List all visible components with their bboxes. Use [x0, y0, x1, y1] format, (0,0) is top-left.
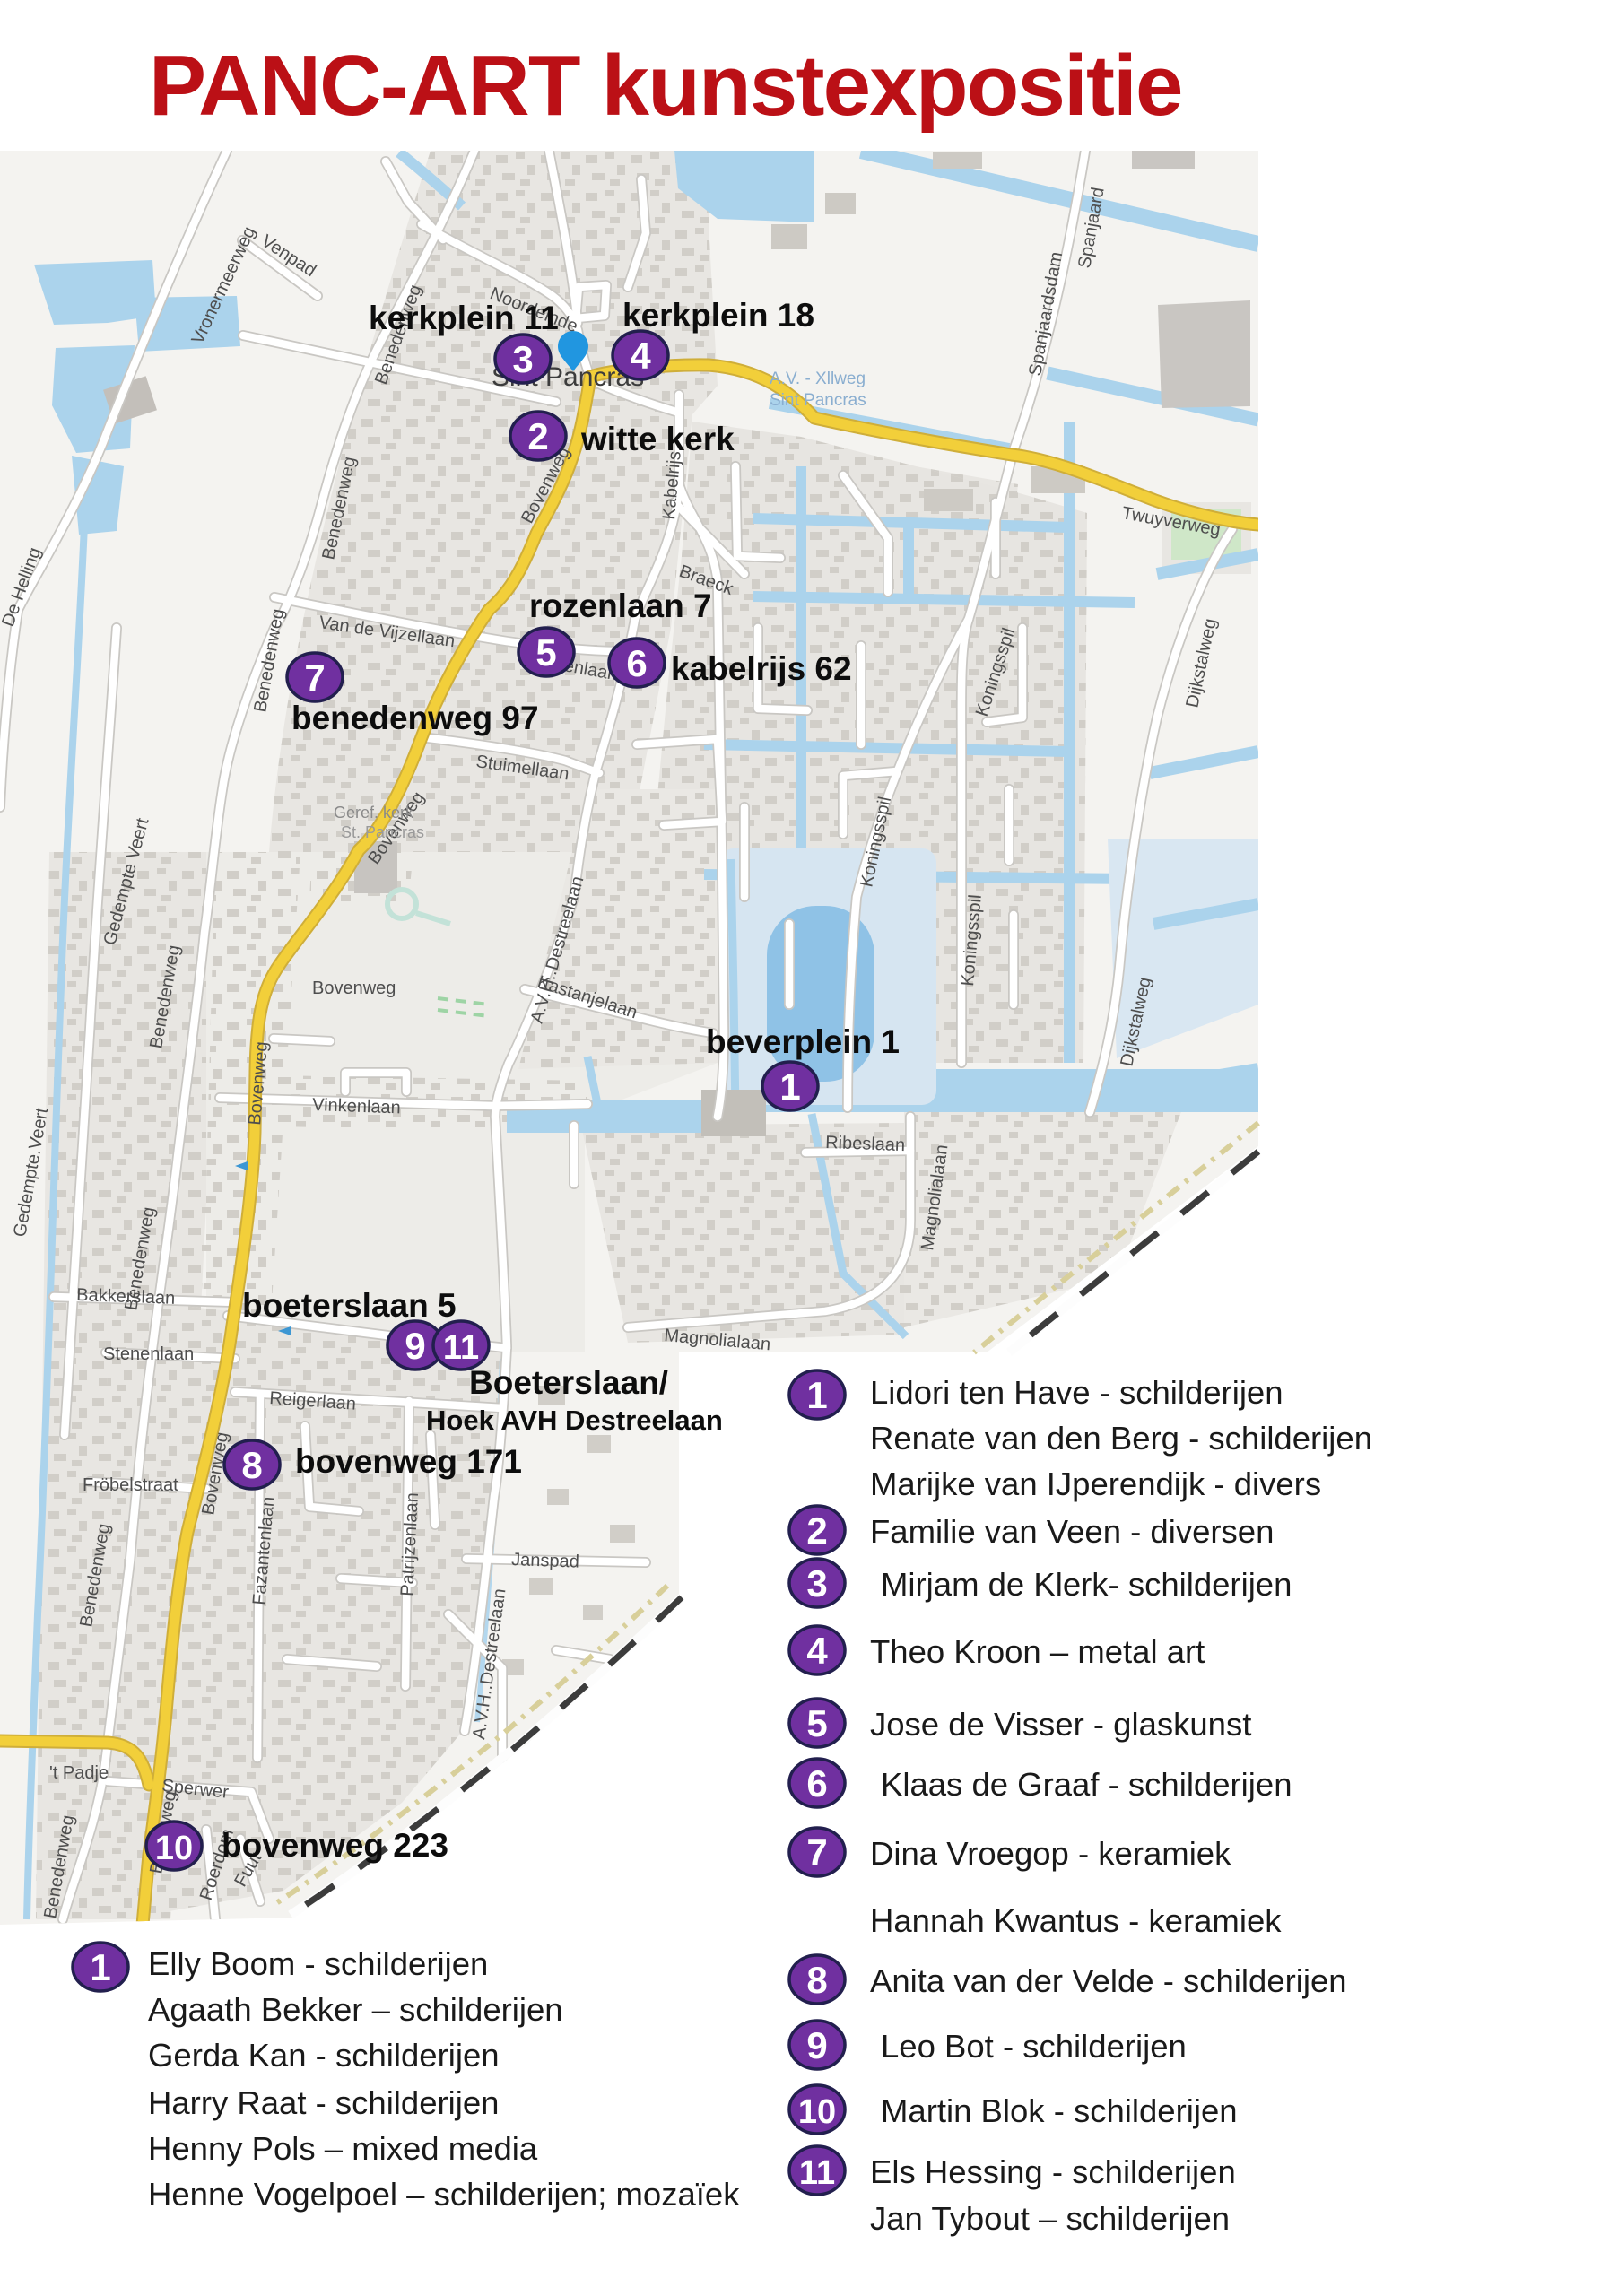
svg-text:Bovenweg: Bovenweg [312, 978, 396, 998]
svg-text:rozenlaan 7: rozenlaan 7 [529, 587, 712, 624]
svg-text:PANC-ART kunstexpositie: PANC-ART kunstexpositie [149, 38, 1182, 134]
svg-text:bovenweg 171: bovenweg 171 [295, 1443, 522, 1480]
svg-text:Renate van den Berg - schilder: Renate van den Berg - schilderijen [870, 1420, 1372, 1457]
svg-text:Jan Tybout – schilderijen: Jan Tybout – schilderijen [870, 2200, 1230, 2237]
svg-text:Mirjam de Klerk- schilderijen: Mirjam de Klerk- schilderijen [881, 1566, 1292, 1603]
svg-text:9: 9 [405, 1325, 425, 1367]
svg-text:kabelrijs 62: kabelrijs 62 [671, 650, 852, 687]
svg-text:7: 7 [304, 657, 325, 699]
svg-text:9: 9 [806, 2024, 827, 2066]
svg-text:Els Hessing - schilderijen: Els Hessing - schilderijen [870, 2153, 1236, 2190]
svg-text:Klaas de Graaf - schilderijen: Klaas de Graaf - schilderijen [881, 1766, 1292, 1803]
svg-text:beverplein 1: beverplein 1 [706, 1023, 900, 1060]
svg-text:kerkplein 11: kerkplein 11 [369, 300, 559, 336]
svg-text:bovenweg 223: bovenweg 223 [222, 1827, 448, 1864]
svg-text:Marijke van IJperendijk - div: Marijke van IJperendijk - divers [870, 1465, 1321, 1502]
svg-text:Hoek AVH Destreelaan: Hoek AVH Destreelaan [426, 1405, 723, 1436]
svg-text:Martin Blok - schilderijen: Martin Blok - schilderijen [881, 2092, 1238, 2129]
svg-text:Henny Pols – mixed media: Henny Pols – mixed media [148, 2130, 538, 2167]
svg-text:Janspad: Janspad [511, 1550, 579, 1572]
svg-text:2: 2 [806, 1509, 827, 1552]
svg-text:11: 11 [443, 1329, 479, 1367]
svg-text:Anita van der Velde - schilder: Anita van der Velde - schilderijen [870, 1962, 1347, 1999]
svg-text:benedenweg 97: benedenweg 97 [291, 700, 539, 736]
svg-text:5: 5 [535, 631, 556, 674]
svg-text:Vinkenlaan: Vinkenlaan [312, 1095, 401, 1118]
svg-text:A.V. - Xllweg: A.V. - Xllweg [770, 370, 866, 388]
svg-text:Jose de Visser - glaskunst: Jose de Visser - glaskunst [870, 1706, 1251, 1743]
svg-text:Lidori ten Have - schilderijen: Lidori ten Have - schilderijen [870, 1374, 1283, 1411]
svg-text:Stenenlaan: Stenenlaan [103, 1344, 194, 1364]
svg-text:10: 10 [798, 2093, 836, 2131]
svg-text:10: 10 [155, 1830, 193, 1867]
svg-text:Geref. kerk: Geref. kerk [334, 804, 414, 822]
svg-text:Familie van Veen - diversen: Familie van Veen - diversen [870, 1513, 1274, 1550]
svg-text:Bakkerslaan: Bakkerslaan [76, 1285, 176, 1309]
svg-text:Sint Pancras: Sint Pancras [770, 391, 866, 410]
svg-text:1: 1 [90, 1946, 110, 1988]
svg-text:Hannah Kwantus - keramiek: Hannah Kwantus - keramiek [870, 1902, 1282, 1939]
svg-text:kerkplein 18: kerkplein 18 [622, 297, 814, 334]
svg-text:Dina Vroegop - keramiek: Dina Vroegop - keramiek [870, 1835, 1231, 1872]
svg-text:1: 1 [779, 1065, 800, 1108]
svg-text:Elly Boom - schilderijen: Elly Boom - schilderijen [148, 1945, 488, 1982]
svg-text:6: 6 [806, 1762, 827, 1805]
svg-text:boeterslaan 5: boeterslaan 5 [242, 1287, 457, 1324]
svg-text:Boeterslaan/: Boeterslaan/ [469, 1364, 668, 1401]
svg-text:6: 6 [626, 642, 647, 684]
svg-text:'t Padje: 't Padje [49, 1763, 109, 1783]
svg-text:Henne Vogelpoel – schilderijen: Henne Vogelpoel – schilderijen; mozaïek [148, 2176, 740, 2213]
svg-text:Fröbelstraat: Fröbelstraat [83, 1475, 178, 1495]
svg-text:8: 8 [806, 1959, 827, 2001]
svg-text:11: 11 [799, 2154, 835, 2192]
svg-text:2: 2 [527, 415, 548, 457]
svg-text:Agaath Bekker – schilderijen: Agaath Bekker – schilderijen [148, 1991, 563, 2028]
svg-text:1: 1 [806, 1374, 827, 1416]
svg-text:3: 3 [806, 1562, 827, 1605]
svg-text:4: 4 [806, 1630, 828, 1672]
svg-text:Theo Kroon – metal art: Theo Kroon – metal art [870, 1633, 1205, 1670]
svg-text:Ribeslaan: Ribeslaan [825, 1133, 906, 1155]
svg-text:7: 7 [806, 1831, 827, 1874]
svg-text:4: 4 [630, 335, 651, 377]
svg-text:5: 5 [806, 1702, 827, 1744]
svg-text:3: 3 [512, 338, 533, 380]
svg-text:8: 8 [241, 1444, 262, 1486]
svg-text:Leo Bot - schilderijen: Leo Bot - schilderijen [881, 2028, 1187, 2065]
svg-text:witte kerk: witte kerk [580, 421, 735, 457]
svg-text:St. Pancras: St. Pancras [341, 823, 424, 841]
svg-text:Harry Raat - schilderijen: Harry Raat - schilderijen [148, 2084, 499, 2121]
svg-text:Gerda Kan - schilderijen: Gerda Kan - schilderijen [148, 2037, 500, 2074]
